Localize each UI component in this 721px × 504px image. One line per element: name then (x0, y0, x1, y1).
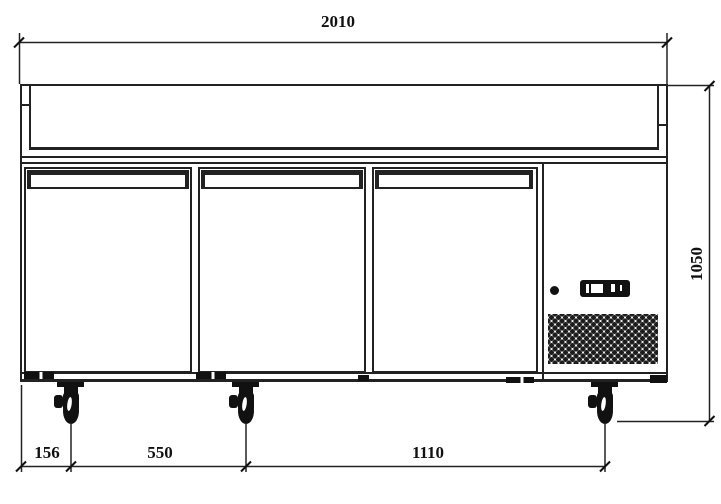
dim-label-caster-offset: 156 (30, 444, 64, 462)
tick-icon (16, 462, 26, 472)
caster-wheel (54, 382, 84, 424)
controller-display-segment (589, 284, 591, 293)
dim-label-overall-height: 1050 (688, 242, 706, 286)
controller-button-small-icon (620, 285, 622, 291)
controller-display (586, 284, 603, 293)
cabinet-top-edge (20, 84, 668, 86)
well-left-joint-tick (20, 104, 31, 106)
hinge-block (196, 372, 226, 379)
well-inner-right-wall (657, 86, 659, 149)
tick-icon (600, 462, 610, 472)
well-inner-bottom (29, 147, 659, 150)
door-2-handle (201, 170, 363, 189)
countertop-line-upper (20, 156, 668, 158)
tick-icon (241, 462, 251, 472)
cabinet-bottom-edge (20, 379, 668, 382)
tick-icon (66, 462, 76, 472)
power-indicator-dot (550, 286, 559, 295)
caster-wheels (54, 382, 618, 424)
technical-drawing-refrigerated-counter: 2010 1050 156 550 1110 (0, 0, 721, 504)
door-1 (24, 167, 192, 373)
caster-wheel (588, 382, 618, 424)
controller-button-icon (611, 284, 615, 292)
hinge-block (24, 372, 54, 379)
cabinet-left-edge (20, 84, 22, 381)
temperature-controller (580, 280, 630, 297)
tick-icon (705, 81, 715, 91)
well-right-joint-tick (657, 124, 668, 126)
dim-label-caster-spacing-left: 550 (142, 444, 178, 462)
hinge-block (358, 375, 369, 381)
well-inner-left-wall (29, 86, 31, 149)
door-3-handle (375, 170, 533, 189)
ventilation-grille (548, 314, 658, 364)
dim-label-overall-width: 2010 (316, 13, 360, 31)
door-1-handle (27, 170, 189, 189)
caster-wheel (229, 382, 259, 424)
door-3 (372, 167, 538, 373)
hinge-block (506, 377, 534, 383)
tick-icon (705, 416, 715, 426)
tick-icon (662, 38, 672, 48)
door-2 (198, 167, 366, 373)
corner-bracket (650, 375, 667, 383)
cabinet-right-edge (666, 84, 668, 381)
dim-label-caster-spacing-right: 1110 (408, 444, 448, 462)
countertop-line-lower (20, 162, 668, 164)
machine-panel-divider (542, 164, 544, 379)
tick-icon (14, 38, 24, 48)
